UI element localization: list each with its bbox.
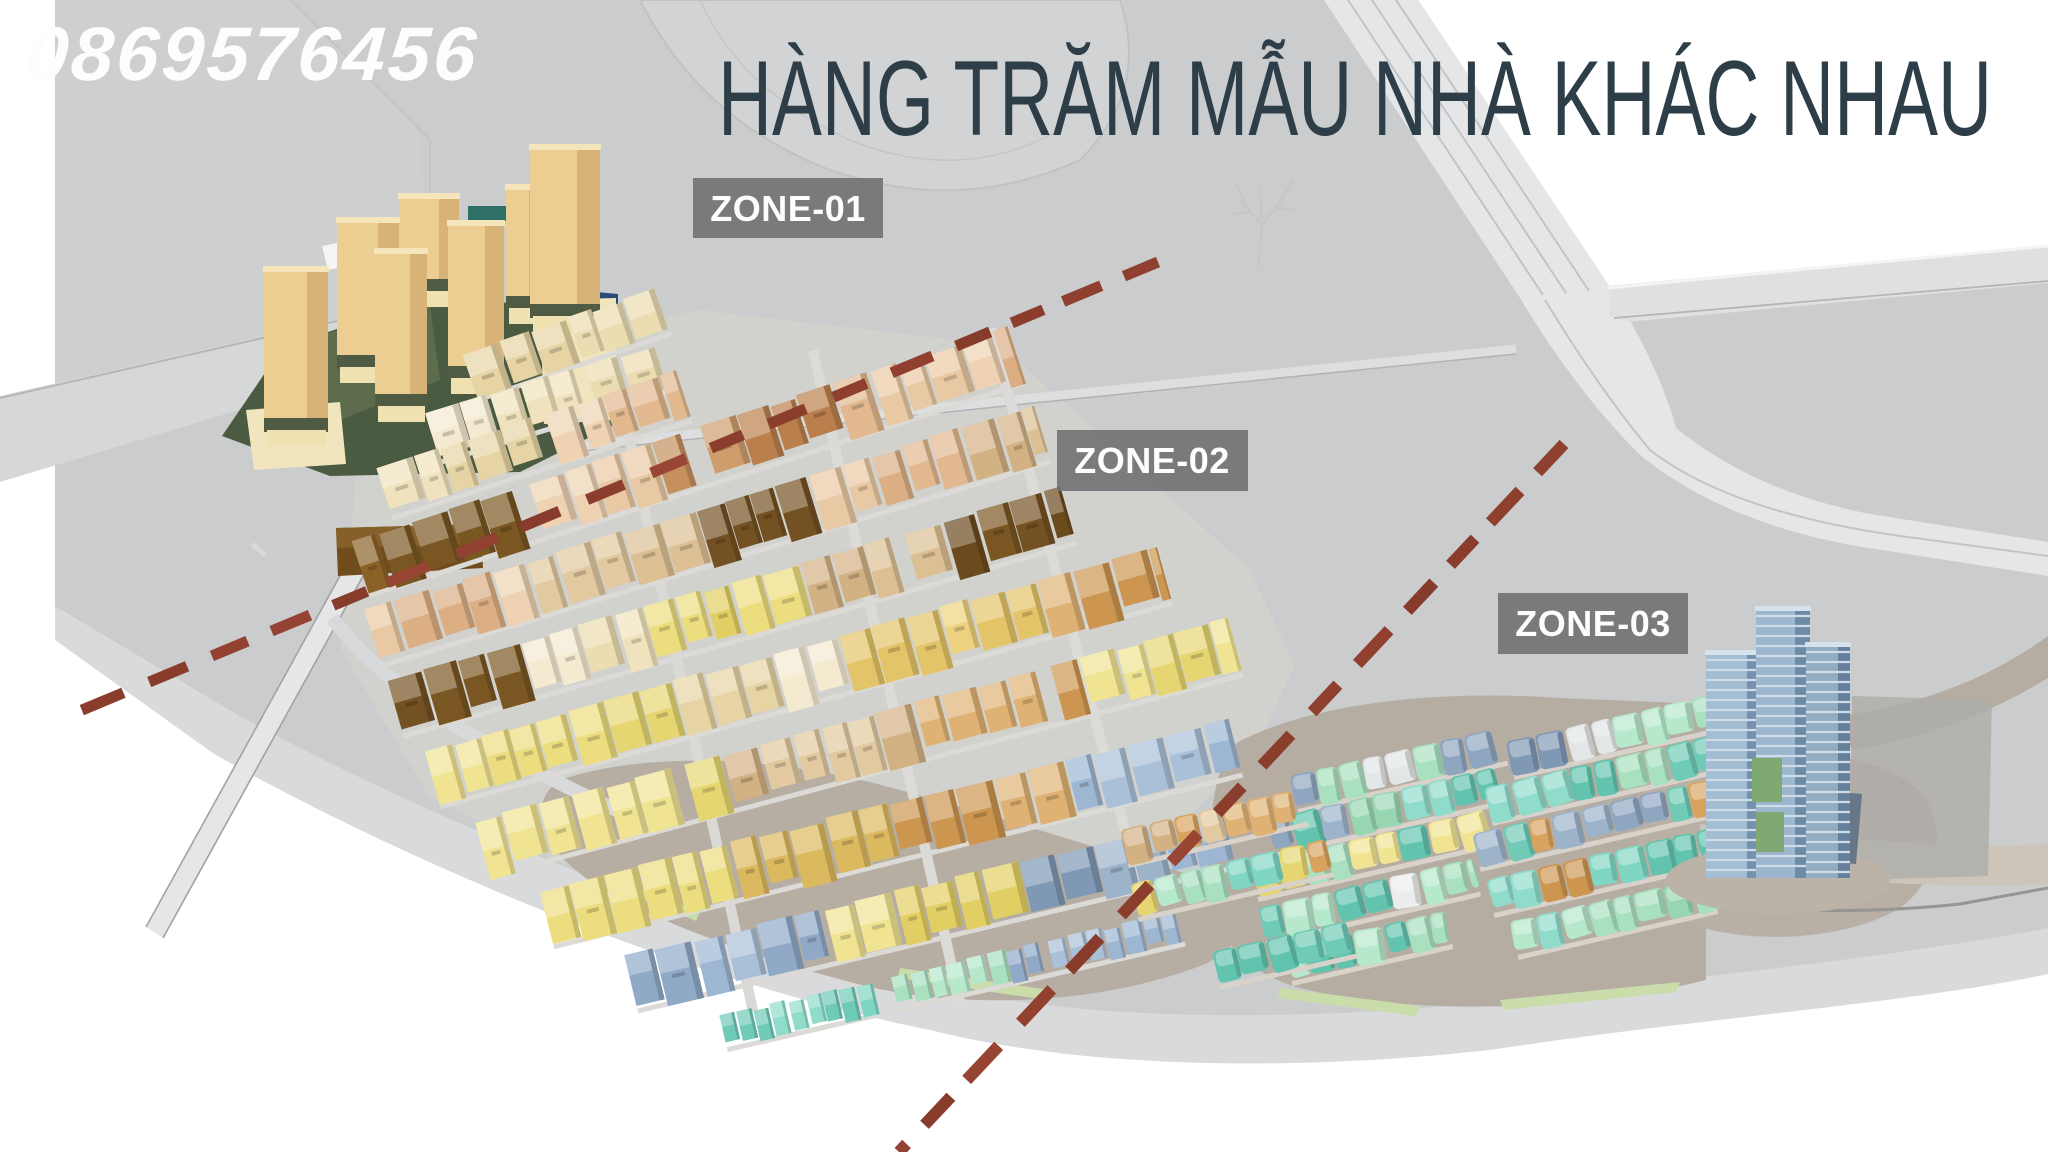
svg-text:ZONE-03: ZONE-03 [1515, 603, 1671, 644]
svg-text:HÀNG TRĂM MẪU NHÀ KHÁC NHAU: HÀNG TRĂM MẪU NHÀ KHÁC NHAU [718, 38, 1992, 158]
svg-text:ZONE-02: ZONE-02 [1074, 440, 1230, 481]
svg-text:0869576456: 0869576456 [23, 12, 482, 97]
svg-text:ZONE-01: ZONE-01 [710, 188, 866, 229]
